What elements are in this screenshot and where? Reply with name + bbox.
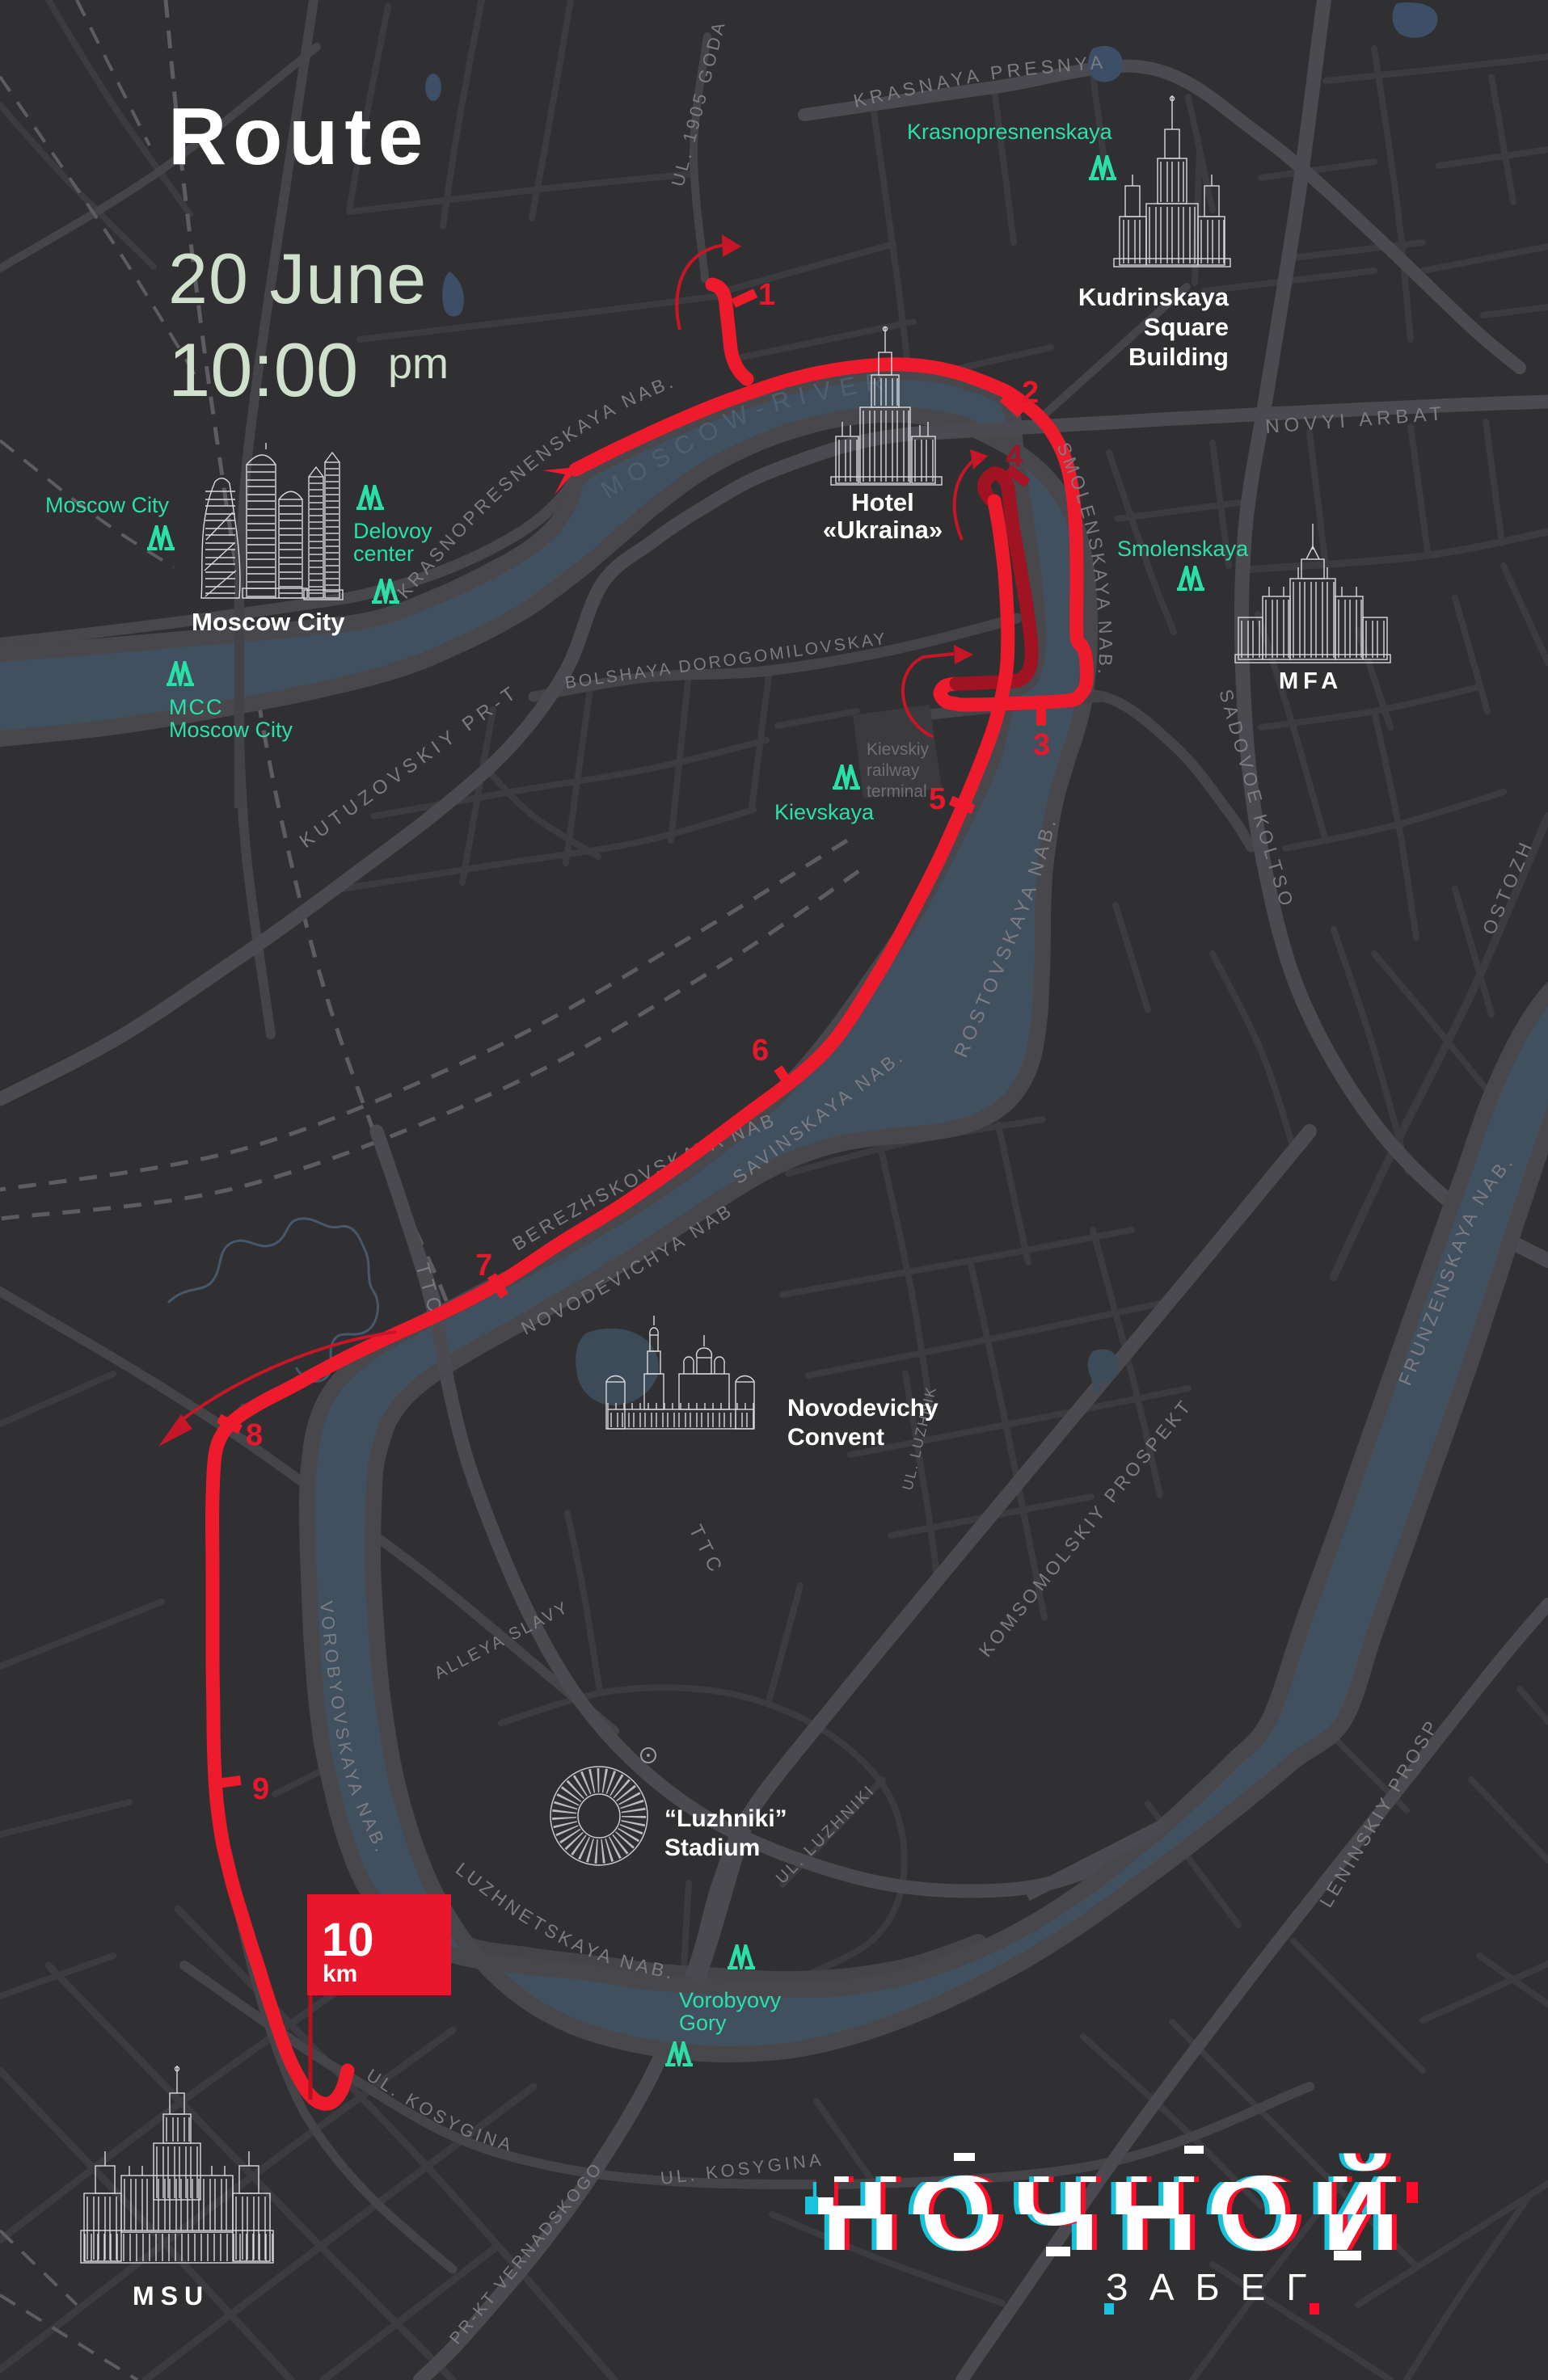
svg-text:Moscow City: Moscow City: [45, 493, 170, 517]
svg-text:Gory: Gory: [679, 2011, 727, 2035]
svg-text:Stadium: Stadium: [664, 1834, 760, 1861]
svg-text:Novodevichy: Novodevichy: [787, 1395, 939, 1422]
svg-text:Square: Square: [1144, 313, 1229, 341]
svg-text:10: 10: [322, 1914, 374, 1966]
svg-text:5: 5: [929, 782, 946, 816]
svg-text:center: center: [353, 541, 414, 566]
svg-text:1: 1: [758, 278, 775, 312]
svg-text:ЗАБЕГ: ЗАБЕГ: [1106, 2266, 1327, 2308]
svg-text:MSU: MSU: [133, 2281, 209, 2310]
svg-text:Moscow City: Moscow City: [192, 608, 345, 636]
svg-text:2: 2: [1022, 376, 1039, 410]
svg-text:«Ukraina»: «Ukraina»: [823, 516, 943, 544]
svg-text:Smolenskaya: Smolenskaya: [1117, 537, 1249, 561]
svg-text:terminal: terminal: [867, 782, 927, 801]
svg-text:9: 9: [252, 1772, 269, 1806]
svg-text:MCC: MCC: [169, 695, 224, 719]
svg-text:3: 3: [1033, 728, 1050, 762]
svg-text:7: 7: [475, 1249, 492, 1283]
svg-text:Hotel: Hotel: [851, 488, 914, 516]
svg-text:Kievskaya: Kievskaya: [774, 800, 875, 824]
svg-text:10:00: 10:00: [168, 327, 358, 412]
svg-text:MFA: MFA: [1279, 668, 1343, 694]
svg-text:Kudrinskaya: Kudrinskaya: [1078, 283, 1230, 311]
svg-text:Krasnopresnenskaya: Krasnopresnenskaya: [907, 120, 1113, 144]
svg-text:20 June: 20 June: [168, 238, 427, 318]
svg-text:km: km: [323, 1961, 357, 1987]
svg-text:Delovoy: Delovoy: [353, 519, 432, 543]
svg-text:Building: Building: [1128, 343, 1229, 371]
svg-text:railway: railway: [867, 761, 920, 780]
svg-text:“Luzhniki”: “Luzhniki”: [664, 1805, 787, 1832]
svg-text:4: 4: [1006, 440, 1023, 474]
svg-text:Kievskiy: Kievskiy: [867, 740, 930, 759]
svg-text:6: 6: [752, 1034, 769, 1068]
svg-text:8: 8: [246, 1418, 263, 1452]
svg-text:Convent: Convent: [787, 1424, 884, 1451]
svg-text:Route: Route: [168, 91, 429, 182]
svg-text:pm: pm: [388, 339, 449, 388]
svg-text:Vorobyovy: Vorobyovy: [679, 1988, 782, 2012]
svg-text:Moscow City: Moscow City: [169, 718, 293, 742]
